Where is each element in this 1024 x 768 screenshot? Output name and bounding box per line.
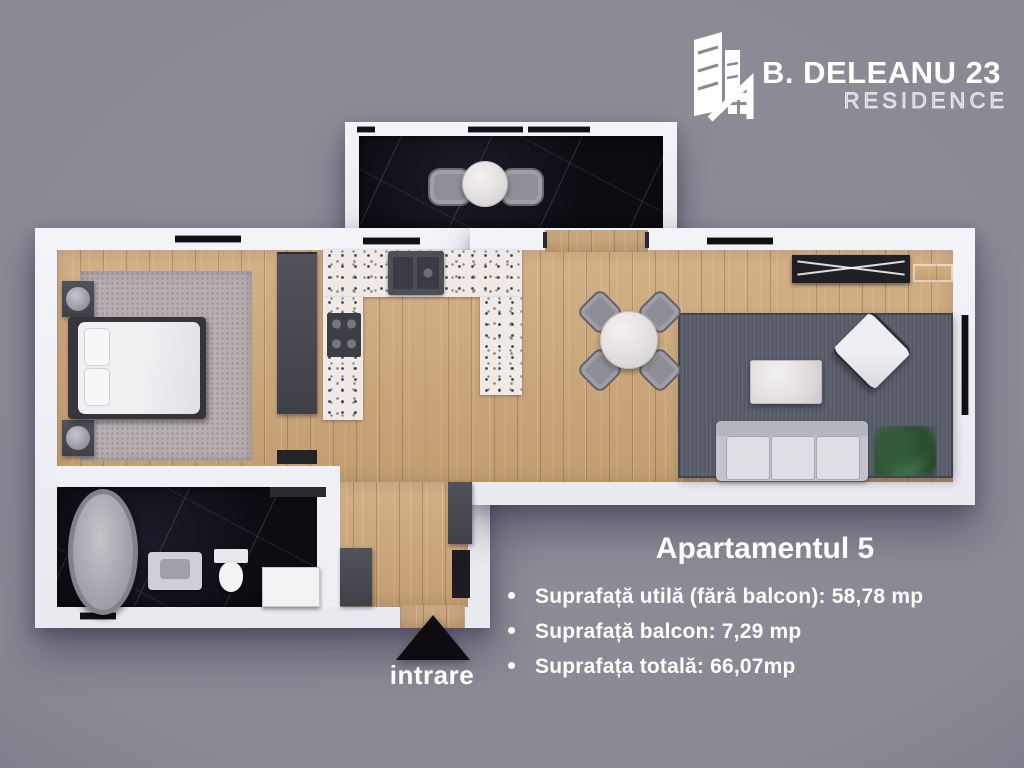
apartment-title: Apartamentul 5 — [560, 532, 970, 566]
living-side-window — [961, 315, 969, 415]
hallway-console — [452, 550, 470, 598]
bathtub — [68, 489, 138, 615]
sink-bowl-left — [393, 257, 413, 289]
sofa-cushion-2 — [771, 436, 815, 480]
window-bench — [913, 264, 953, 282]
dining-table — [600, 311, 658, 369]
balcony-table — [462, 161, 508, 207]
hallway-cabinet-left — [340, 548, 372, 606]
list-item-total-area: Suprafața totală: 66,07mp — [508, 655, 1008, 679]
living-top-window — [707, 237, 773, 245]
sofa-back — [716, 421, 868, 436]
balcony-window-right — [528, 126, 590, 133]
bed-pillow-bottom — [84, 368, 110, 406]
logo-title: B. DELEANU 23 — [762, 55, 1001, 91]
sofa-cushion-1 — [726, 436, 770, 480]
flyer-canvas: B. DELEANU 23 RESIDENCE — [0, 0, 1024, 768]
useful-area-text: Suprafață utilă (fără balcon): 58,78 mp — [535, 585, 923, 609]
list-item-useful-area: Suprafață utilă (fără balcon): 58,78 mp — [508, 585, 1008, 609]
balcony-area-text: Suprafață balcon: 7,29 mp — [535, 620, 801, 644]
balcony-window-left — [468, 126, 523, 133]
washing-machine — [262, 567, 320, 607]
bullet-dot-icon — [508, 592, 515, 599]
sofa-cushion-3 — [816, 436, 860, 480]
building-residence-icon — [672, 26, 772, 122]
entrance-label: intrare — [352, 660, 512, 691]
toilet-tank — [214, 549, 248, 563]
toilet-bowl — [219, 562, 243, 592]
bathroom-shelf — [270, 487, 326, 497]
list-item-balcony-area: Suprafață balcon: 7,29 mp — [508, 620, 1008, 644]
entrance-arrow-icon — [396, 615, 470, 660]
bed-pillow-top — [84, 328, 110, 366]
hallway-cabinet-right — [448, 482, 472, 544]
logo-subtitle: RESIDENCE — [762, 88, 1008, 114]
bullet-dot-icon — [508, 627, 515, 634]
vanity-basin — [160, 559, 190, 579]
kitchen-hob — [327, 313, 361, 357]
balcony-window-small — [357, 126, 375, 133]
lamp-bottom — [66, 426, 90, 450]
coffee-table — [750, 360, 822, 404]
balcony-door-opening — [545, 230, 648, 252]
sink-bowl-right — [417, 257, 439, 289]
kitchen-counter-right — [480, 297, 522, 395]
lamp-top — [66, 287, 90, 311]
balcony-door-frame-left — [543, 232, 547, 248]
bedroom-wardrobe — [277, 252, 317, 414]
kitchen-window — [363, 237, 420, 245]
bullet-dot-icon — [508, 662, 515, 669]
plant — [874, 426, 936, 476]
balcony-door-frame-right — [645, 232, 649, 248]
total-area-text: Suprafața totală: 66,07mp — [535, 655, 796, 679]
area-details-list: Suprafață utilă (fără balcon): 58,78 mp … — [508, 585, 1008, 690]
bathroom-top-wall — [57, 466, 330, 487]
bedroom-window — [175, 235, 241, 243]
bedroom-bench — [277, 450, 317, 464]
